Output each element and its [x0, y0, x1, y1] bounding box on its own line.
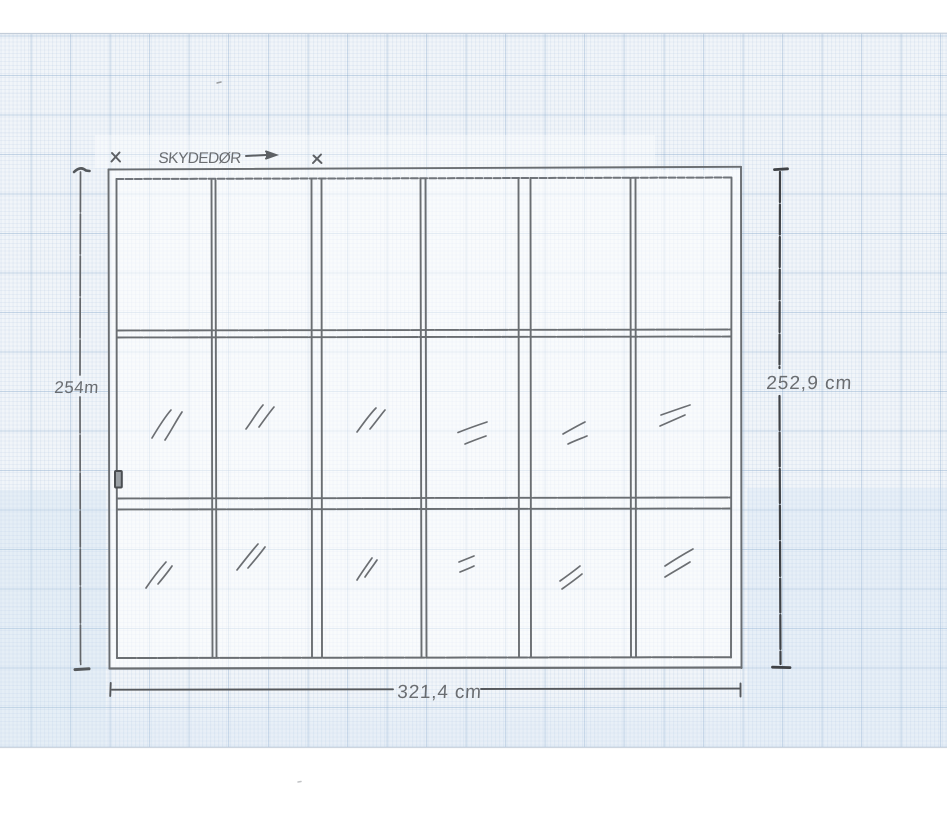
svg-text:254m: 254m: [54, 378, 100, 397]
svg-text:321,4 cm: 321,4 cm: [397, 682, 483, 703]
svg-text:SKYDEDØR: SKYDEDØR: [158, 150, 242, 167]
svg-text:252,9 cm: 252,9 cm: [766, 373, 853, 394]
